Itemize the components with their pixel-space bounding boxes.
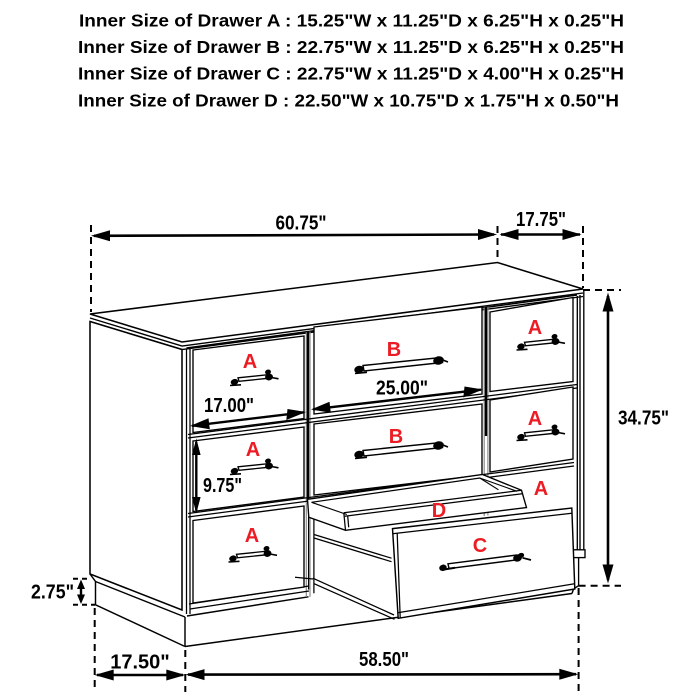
svg-text:B: B — [389, 426, 403, 448]
svg-text:58.50": 58.50" — [359, 649, 409, 671]
svg-text:25.00": 25.00" — [376, 378, 428, 400]
svg-text:34.75": 34.75" — [618, 408, 669, 430]
svg-text:Inner Size of Drawer A : 15.25: Inner Size of Drawer A : 15.25"W x 11.25… — [79, 11, 624, 31]
svg-text:2.75": 2.75" — [31, 582, 74, 604]
svg-text:17.00": 17.00" — [204, 395, 254, 417]
svg-text:17.50": 17.50" — [110, 652, 170, 674]
svg-text:9.75": 9.75" — [203, 475, 242, 497]
svg-text:Inner Size of Drawer C : 22.75: Inner Size of Drawer C : 22.75"W x 11.25… — [78, 64, 624, 84]
svg-text:A: A — [528, 317, 542, 339]
svg-text:Inner Size of Drawer B : 22.75: Inner Size of Drawer B : 22.75"W x 11.25… — [78, 37, 624, 57]
svg-text:A: A — [528, 408, 542, 430]
svg-text:B: B — [387, 339, 401, 361]
svg-text:A: A — [534, 478, 548, 500]
svg-text:17.75": 17.75" — [516, 209, 566, 231]
svg-text:A: A — [246, 439, 260, 461]
svg-text:D: D — [432, 500, 446, 522]
svg-text:A: A — [243, 351, 257, 373]
svg-text:C: C — [473, 535, 487, 557]
svg-text:60.75": 60.75" — [276, 213, 327, 235]
svg-text:Inner Size of Drawer D : 22.5: Inner Size of Drawer D : 22.50"W x 10.75… — [78, 91, 619, 111]
svg-text:A: A — [245, 525, 259, 547]
